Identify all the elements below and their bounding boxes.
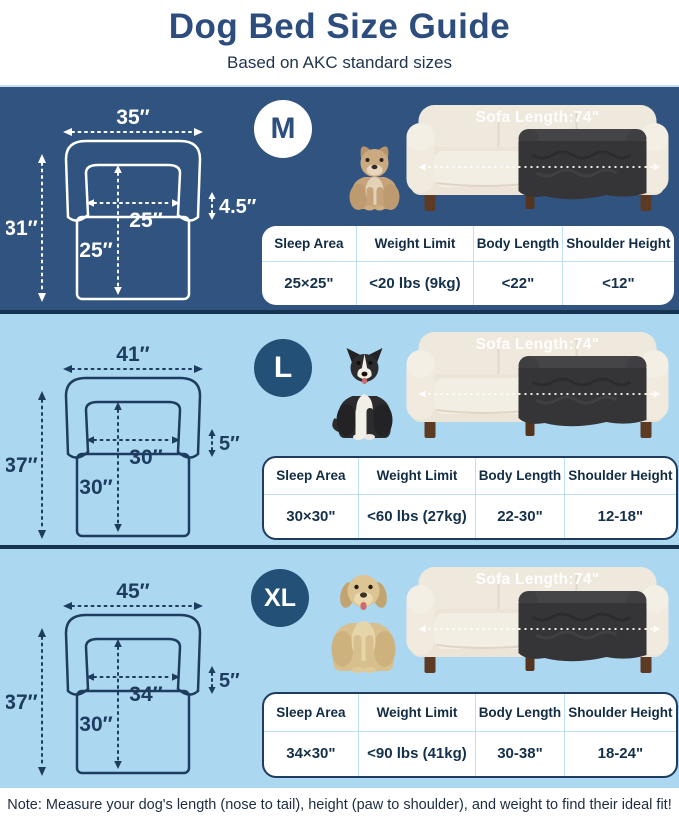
dim-inner-width-label: 25″ (129, 209, 162, 232)
size-section-xl: 45″ 37″ 34″ 30″ 5″ XL Sofa Length:74" Sl… (0, 545, 679, 788)
dim-bolster-label: 5″ (219, 433, 240, 455)
dim-bolster-label: 5″ (219, 670, 240, 692)
col-header-sleep-area: Sleep Area (262, 226, 357, 262)
col-header-sleep-area: Sleep Area (264, 458, 359, 495)
value-shoulder-height: 18-24" (565, 732, 676, 776)
col-header-body-length: Body Length (474, 226, 563, 262)
bed-outline-drawing (38, 602, 216, 776)
sofa-scene: Sofa Length:74" (320, 553, 675, 675)
value-weight-limit: <20 lbs (9kg) (357, 262, 474, 305)
dog-bed-size-guide-page: Dog Bed Size Guide Based on AKC standard… (0, 0, 679, 821)
col-header-weight-limit: Weight Limit (359, 694, 476, 732)
dim-width-label: 45″ (116, 580, 149, 603)
size-section-l: 41″ 37″ 30″ 30″ 5″ L Sofa Length:74" Sle… (0, 310, 679, 545)
dim-inner-width-label: 34″ (129, 683, 162, 706)
spec-table-l: Sleep Area Weight Limit Body Length Shou… (262, 456, 678, 540)
dog-photo-french-bulldog (350, 146, 400, 210)
value-body-length: 22-30" (476, 495, 565, 538)
sofa-scene: Sofa Length:74" (320, 318, 675, 440)
sofa-length-label: Sofa Length:74" (476, 571, 600, 588)
bed-outline-drawing (38, 365, 216, 539)
dim-inner-depth-label: 30″ (79, 713, 112, 736)
col-header-body-length: Body Length (476, 458, 565, 495)
dim-inner-width-label: 30″ (129, 446, 162, 469)
dim-height-label: 37″ (6, 691, 38, 714)
sofa-length-label: Sofa Length:74" (476, 109, 600, 126)
bed-dimension-diagram: 35″ 31″ 25″ 25″ 4.5″ (6, 105, 264, 310)
value-shoulder-height: 12-18" (565, 495, 676, 538)
col-header-weight-limit: Weight Limit (359, 458, 476, 495)
col-header-shoulder-height: Shoulder Height (563, 226, 674, 262)
size-section-m: 35″ 31″ 25″ 25″ 4.5″ M Sofa Length:74" S… (0, 85, 679, 310)
header: Dog Bed Size Guide Based on AKC standard… (0, 0, 679, 85)
value-weight-limit: <60 lbs (27kg) (359, 495, 476, 538)
col-header-shoulder-height: Shoulder Height (565, 458, 676, 495)
dim-height-label: 31″ (6, 217, 38, 240)
value-weight-limit: <90 lbs (41kg) (359, 732, 476, 776)
sofa-scene: Sofa Length:74" (320, 91, 675, 213)
col-header-body-length: Body Length (476, 694, 565, 732)
sofa-length-label: Sofa Length:74" (476, 336, 600, 353)
dim-height-label: 37″ (6, 454, 38, 477)
page-subtitle: Based on AKC standard sizes (0, 47, 679, 73)
footer-note: Note: Measure your dog's length (nose to… (0, 788, 679, 821)
size-badge-l: L (254, 339, 312, 397)
value-body-length: 30-38" (476, 732, 565, 776)
value-sleep-area: 30×30" (264, 495, 359, 538)
dim-inner-depth-label: 30″ (79, 476, 112, 499)
size-badge-xl: XL (251, 569, 309, 627)
value-sleep-area: 34×30" (264, 732, 359, 776)
col-header-shoulder-height: Shoulder Height (565, 694, 676, 732)
value-shoulder-height: <12" (563, 262, 674, 305)
spec-table-xl: Sleep Area Weight Limit Body Length Shou… (262, 692, 678, 778)
dog-photo-border-collie (332, 348, 392, 440)
value-sleep-area: 25×25" (262, 262, 357, 305)
bed-dimension-diagram: 41″ 37″ 30″ 30″ 5″ (6, 342, 264, 547)
bed-outline-drawing (38, 128, 216, 302)
dim-bolster-label: 4.5″ (219, 196, 257, 218)
value-body-length: <22" (474, 262, 563, 305)
dog-photo-labrador (332, 575, 396, 673)
col-header-weight-limit: Weight Limit (357, 226, 474, 262)
spec-table-m: Sleep Area Weight Limit Body Length Shou… (262, 226, 674, 305)
bed-dimension-diagram: 45″ 37″ 34″ 30″ 5″ (6, 579, 264, 784)
dim-width-label: 35″ (116, 106, 149, 129)
dim-inner-depth-label: 25″ (79, 239, 112, 262)
page-title: Dog Bed Size Guide (0, 0, 679, 47)
dim-width-label: 41″ (116, 343, 149, 366)
size-badge-m: M (254, 100, 312, 158)
col-header-sleep-area: Sleep Area (264, 694, 359, 732)
